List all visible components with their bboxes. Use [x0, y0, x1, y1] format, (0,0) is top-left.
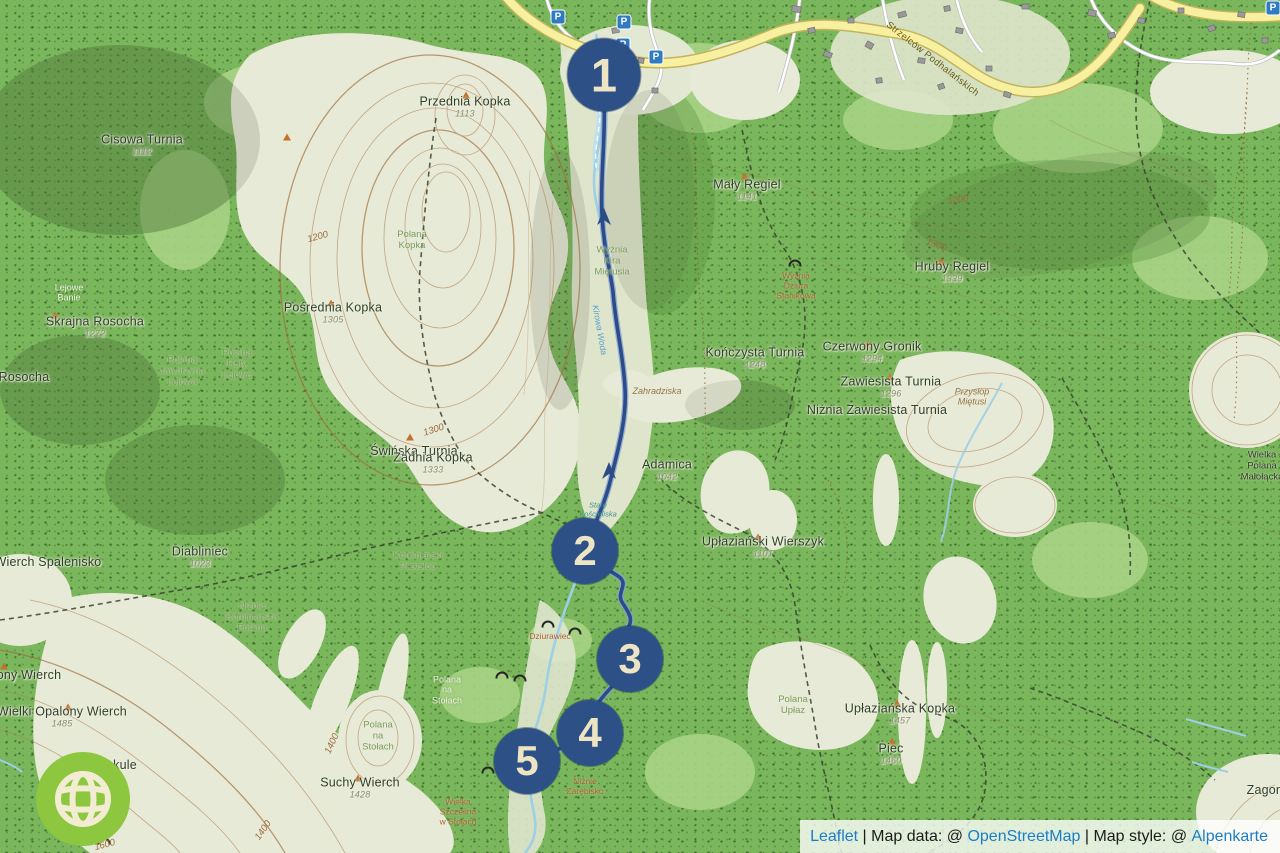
- alpenkarte-globe-logo: [36, 752, 130, 846]
- attribution-bar: Leaflet | Map data: @ OpenStreetMap | Ma…: [800, 820, 1280, 853]
- map-data-prefix: Map data: @: [871, 828, 967, 846]
- parking-icon: P: [1266, 1, 1280, 16]
- parking-icon: P: [551, 10, 566, 25]
- globe-icon: [36, 752, 130, 846]
- cave-icon: [542, 621, 555, 628]
- peak-icon: [51, 312, 59, 319]
- peak-icon: [327, 300, 335, 307]
- openstreetmap-link[interactable]: OpenStreetMap: [967, 828, 1080, 846]
- peak-icon: [754, 534, 762, 541]
- cave-icon: [789, 260, 802, 267]
- cave-icon: [569, 628, 582, 635]
- leaflet-link[interactable]: Leaflet: [810, 828, 858, 846]
- peak-icon: [462, 92, 470, 99]
- peak-icon: [937, 258, 945, 265]
- map-style-prefix: Map style: @: [1093, 828, 1191, 846]
- peak-icon: [864, 341, 872, 348]
- parking-icon: P: [617, 15, 632, 30]
- cave-icon: [514, 675, 527, 682]
- peak-icon: [888, 738, 896, 745]
- peak-icon: [886, 374, 894, 381]
- peak-icon: [283, 134, 291, 141]
- peak-icon: [741, 173, 749, 180]
- route-marker-2[interactable]: 2: [552, 518, 618, 584]
- attribution-separator: |: [858, 828, 871, 846]
- cave-icon: [496, 672, 509, 679]
- alpenkarte-link[interactable]: Alpenkarte: [1192, 828, 1269, 846]
- route-marker-1[interactable]: 1: [568, 39, 641, 112]
- peak-icon: [406, 434, 414, 441]
- route-marker-3[interactable]: 3: [597, 626, 663, 692]
- map-canvas[interactable]: Cisowa Turnia1112Przednia Kopka1113Mały …: [0, 0, 1280, 853]
- attribution-separator: |: [1080, 828, 1093, 846]
- route-marker-5[interactable]: 5: [494, 728, 560, 794]
- peak-icon: [354, 775, 362, 782]
- route-marker-4[interactable]: 4: [557, 700, 623, 766]
- peak-icon: [0, 663, 8, 670]
- map-tile-artwork: [0, 0, 1280, 853]
- peak-icon: [64, 704, 72, 711]
- parking-icon: P: [649, 50, 664, 65]
- peak-icon: [893, 700, 901, 707]
- cave-icon: [482, 767, 495, 774]
